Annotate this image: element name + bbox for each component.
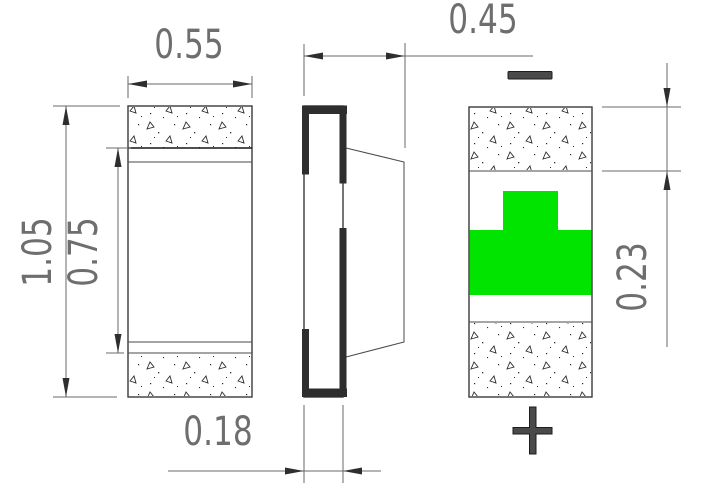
side-view-body — [304, 106, 343, 397]
dim-front-width-label: 0.55 — [154, 22, 223, 68]
drawing-canvas: 0.55 1.05 0.75 0.45 0.18 — [0, 0, 709, 500]
side-view — [302, 106, 404, 398]
dim-front-body-height-label: 0.75 — [61, 217, 107, 286]
dim-side-base-depth-label: 0.18 — [183, 409, 252, 455]
dim-front-total-height-label: 1.05 — [15, 217, 61, 286]
front-bottom-terminal-hatch — [129, 355, 251, 396]
front-top-terminal-hatch — [129, 107, 251, 148]
front-view — [128, 106, 252, 397]
back-view — [469, 107, 592, 397]
dim-front-body-height: 0.75 — [61, 148, 131, 353]
back-bottom-terminal-hatch — [470, 323, 591, 396]
side-lens-profile — [346, 148, 404, 357]
dim-front-width: 0.55 — [128, 22, 252, 98]
dim-side-total-depth-label: 0.45 — [448, 0, 517, 43]
dim-back-terminal-height-label: 0.23 — [610, 242, 656, 311]
technical-drawing-page: 0.55 1.05 0.75 0.45 0.18 — [0, 0, 709, 500]
back-top-terminal-hatch — [470, 108, 591, 170]
minus-polarity-icon — [508, 72, 552, 80]
plus-polarity-icon — [513, 407, 552, 454]
dim-side-base-depth: 0.18 — [168, 405, 381, 483]
dim-back-terminal-height: 0.23 — [602, 63, 681, 347]
